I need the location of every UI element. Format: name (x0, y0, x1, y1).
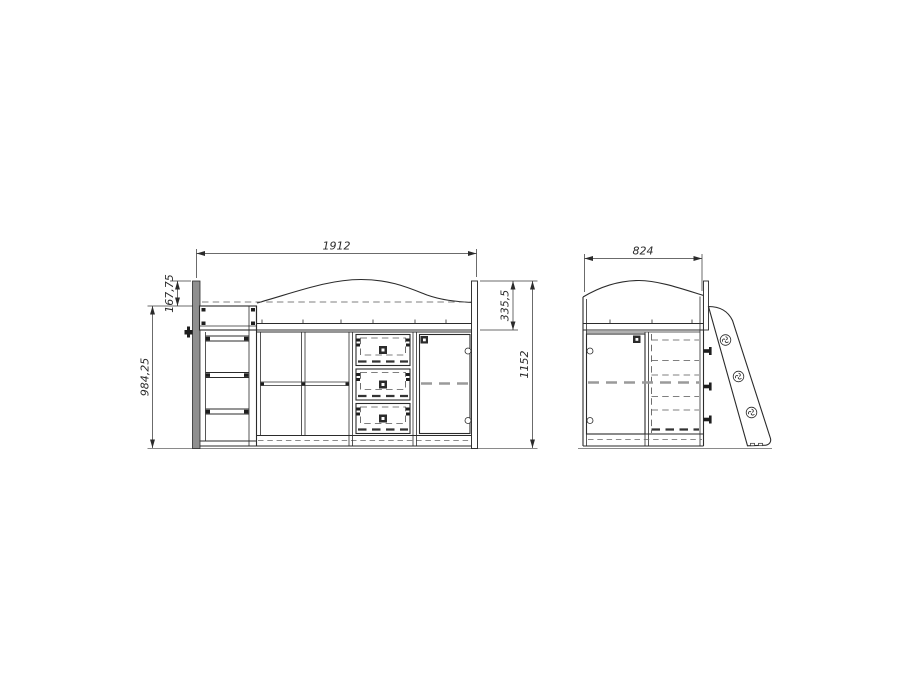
dim-top-section-label: 167,75 (163, 274, 176, 313)
hinge-icon (465, 418, 471, 424)
cabinet (420, 335, 472, 434)
drawer-knob-icon (379, 381, 387, 389)
ladder-rung (206, 336, 250, 341)
side-view: 824 (578, 245, 772, 449)
plinth (583, 434, 704, 446)
drawer-1 (356, 335, 410, 366)
hinge-icon (587, 418, 593, 424)
drawer-2 (356, 369, 410, 400)
drawer-knob-icon (379, 346, 387, 354)
climbing-slide (704, 307, 771, 446)
dim-overall-height: 1152 (518, 281, 533, 448)
wall-anchor-peg (185, 327, 193, 338)
shelf-unit (261, 332, 353, 446)
slide-bolt-icon (704, 416, 712, 424)
safety-rail-curve (257, 280, 472, 304)
door-knob-icon (633, 336, 641, 344)
climb-hole-icon (746, 407, 757, 418)
climb-hole-icon (733, 371, 744, 382)
cabinet-knob-icon (421, 336, 429, 344)
dim-overall-depth-label: 824 (633, 245, 654, 258)
headboard-panel-edge (193, 281, 201, 449)
bed-deck (583, 320, 704, 331)
technical-drawing-canvas: 1912 167,75 984,25 335,5 1152 (0, 0, 920, 690)
dim-rail-height: 335,5 (480, 281, 538, 330)
hinge-icon (465, 348, 471, 354)
dim-overall-depth: 824 (585, 245, 703, 293)
drawer-3 (356, 404, 410, 434)
front-rail-edge (704, 281, 709, 330)
dim-top-section-height: 167,75 (163, 274, 191, 313)
hinge-icon (587, 348, 593, 354)
side-door (587, 334, 646, 434)
ladder-rung (206, 409, 250, 414)
side-panel-edges (583, 296, 704, 447)
slide-bolt-icon (704, 347, 712, 355)
dim-base-height-label: 984,25 (139, 358, 152, 397)
ladder-guard-rail (200, 306, 257, 330)
drawer-knob-icon (379, 415, 387, 423)
headboard-curve (583, 281, 704, 298)
drawing-svg: 1912 167,75 984,25 335,5 1152 (0, 0, 920, 690)
hidden-drawer-lines (588, 334, 699, 433)
drawer-unit (356, 332, 417, 446)
dim-overall-width: 1912 (197, 240, 477, 279)
front-view: 1912 167,75 984,25 335,5 1152 (139, 240, 538, 449)
dim-rail-height-label: 335,5 (499, 290, 512, 322)
slide-bolt-icon (704, 383, 712, 391)
climb-hole-icon (720, 335, 731, 346)
footboard-panel-edge (472, 281, 478, 449)
dim-overall-width-label: 1912 (323, 240, 351, 253)
dim-overall-height-label: 1152 (518, 351, 531, 379)
ladder-rung (206, 373, 250, 378)
